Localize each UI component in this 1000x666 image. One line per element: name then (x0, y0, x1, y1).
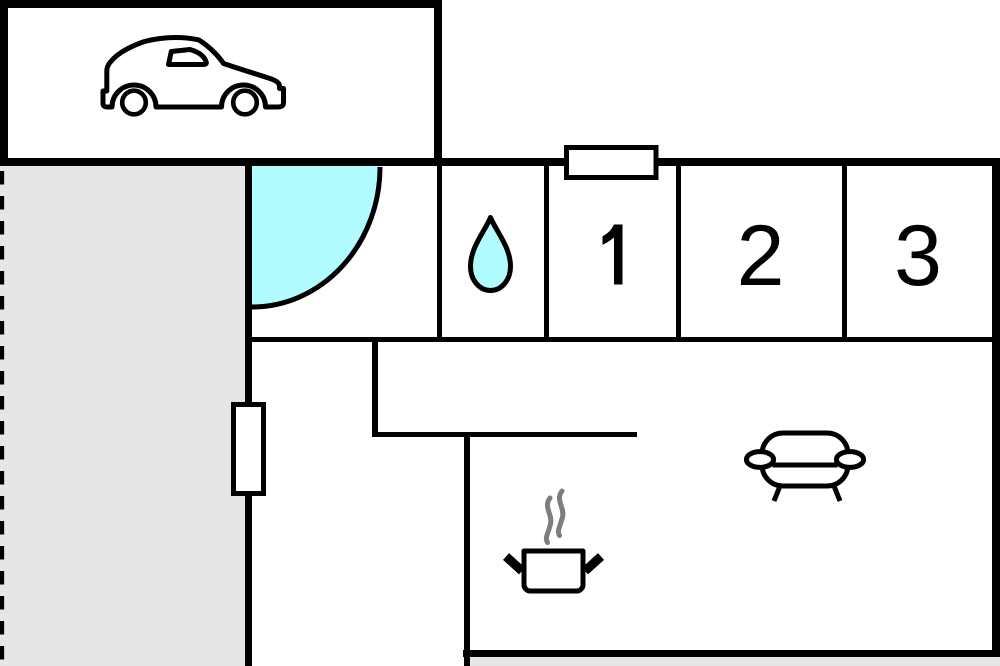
svg-text:2: 2 (737, 208, 785, 304)
svg-text:3: 3 (894, 208, 942, 304)
